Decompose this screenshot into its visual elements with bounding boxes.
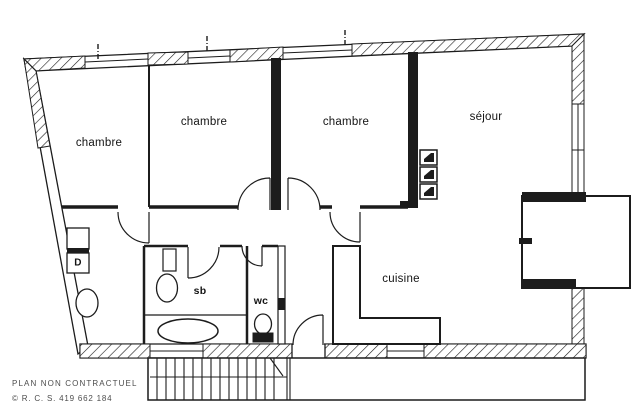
exterior-walls xyxy=(24,30,586,360)
bottom-wall-hatch-1 xyxy=(80,344,150,358)
room-label-bedroom-3: chambre xyxy=(323,116,369,128)
bottom-wall-hatch-3 xyxy=(325,344,387,358)
annex-top-bar xyxy=(522,192,586,202)
wall-unit-icon xyxy=(420,167,437,182)
wc-door xyxy=(242,246,262,266)
bathroom-door xyxy=(188,247,219,278)
bedroom3-living-wall xyxy=(408,52,418,206)
registration-text: © R. C. S. 419 662 184 xyxy=(12,394,112,403)
room-label-toilet: wc xyxy=(254,295,268,307)
right-wall-window xyxy=(572,104,584,196)
wall-units xyxy=(420,150,437,199)
wall-unit-icon xyxy=(420,150,437,165)
room-label-closet: D xyxy=(74,258,81,269)
top-wall-hatch-2 xyxy=(148,52,188,65)
bottom-wall-hatch-4 xyxy=(424,344,586,358)
wall-unit-icon xyxy=(420,184,437,199)
entry-table xyxy=(76,289,98,317)
top-wall-hatch-4 xyxy=(352,34,584,56)
kitchen-counter xyxy=(333,246,440,344)
floor-plan: chambre chambre chambre séjour cuisine s… xyxy=(0,0,640,415)
room-label-bedroom-1: chambre xyxy=(76,137,122,149)
washbasin xyxy=(157,274,178,302)
toilet-bowl xyxy=(255,314,272,334)
doors xyxy=(118,178,360,345)
bedroom3-door xyxy=(288,178,320,210)
annex-bottom-bar xyxy=(522,279,576,289)
bottom-wall-hatch-2 xyxy=(203,344,292,358)
room-label-living-room: séjour xyxy=(470,111,503,123)
room-label-bedroom-2: chambre xyxy=(181,116,227,128)
terrace-stairs xyxy=(148,358,585,400)
shower-column xyxy=(163,249,176,271)
room-label-bathroom: sb xyxy=(194,285,207,297)
wc-east-wall xyxy=(278,246,285,344)
disclaimer-text: PLAN NON CONTRACTUEL xyxy=(12,379,138,388)
toilet-tank xyxy=(253,333,273,342)
annex-structure xyxy=(519,192,630,289)
entry-door xyxy=(118,212,149,243)
entrance-door xyxy=(293,315,323,345)
annex-outline xyxy=(522,196,630,288)
left-wall-hatch xyxy=(24,59,50,148)
entry-cabinet-shelf-bar xyxy=(67,248,89,253)
bedroom2-door xyxy=(238,178,270,210)
floor-plan-drawing xyxy=(0,0,640,415)
room-label-kitchen: cuisine xyxy=(382,273,419,285)
right-wall-hatch-top xyxy=(572,34,584,104)
terrace-outline xyxy=(148,358,585,400)
bedroom2-bedroom3-wall xyxy=(271,58,281,210)
annex-left-tick xyxy=(519,238,532,244)
wc-east-wall-duct xyxy=(278,298,285,310)
hallway-living-door xyxy=(330,212,360,242)
entry-cabinet-top xyxy=(67,228,89,249)
bathtub xyxy=(158,319,218,343)
